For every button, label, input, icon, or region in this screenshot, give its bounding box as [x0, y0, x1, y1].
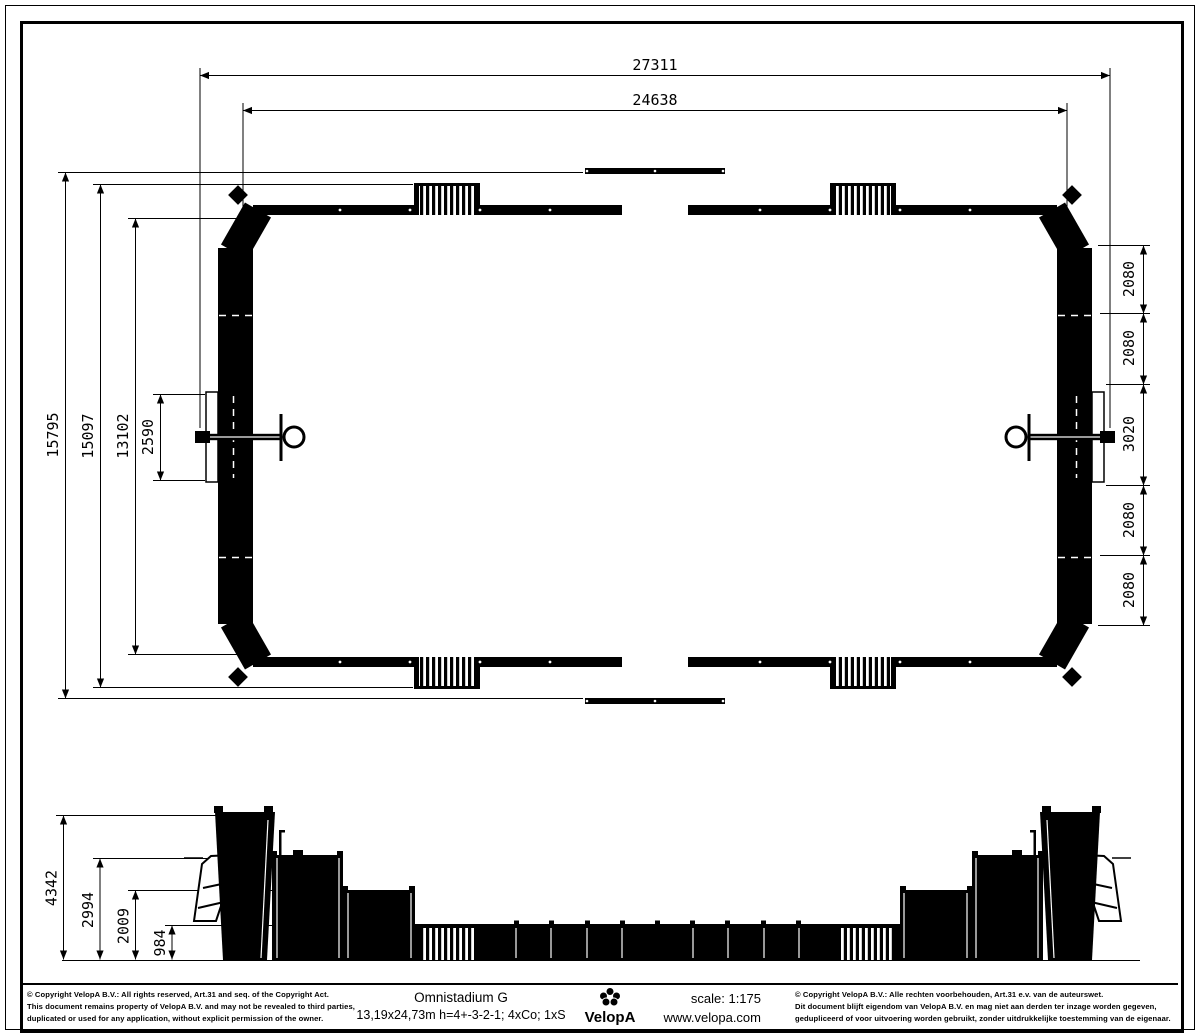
elevation-structure-half	[184, 806, 660, 960]
dim-frame-width: 24638	[632, 91, 677, 109]
copyright-right-line-2: Dit document blijft eigendom van VelopA …	[795, 1001, 1171, 1013]
plan-structure-quadrant	[218, 168, 725, 437]
plan-structure-top-right	[585, 168, 1092, 437]
product-spec: 13,19x24,73m h=4+-3-2-1; 4xCo; 1xS	[341, 1008, 581, 1022]
product-title: Omnistadium G	[341, 990, 581, 1005]
dim-height-total: 4342	[43, 870, 61, 906]
plan-view: 27311 24638 15795 15097 13102 2590 2080 …	[44, 56, 1150, 704]
copyright-left-line-2: This document remains property of VelopA…	[27, 1001, 355, 1013]
dim-height-2: 2994	[79, 892, 97, 928]
dim-height-3: 2009	[115, 908, 133, 944]
product-info: Omnistadium G 13,19x24,73m h=4+-3-2-1; 4…	[341, 990, 581, 1022]
copyright-left-line-3: duplicated or used for any application, …	[27, 1013, 355, 1025]
copyright-left: © Copyright VelopA B.V.: All rights rese…	[27, 989, 355, 1025]
elevation-view: 4342 2994 2009 984	[43, 806, 1141, 961]
copyright-left-line-1: © Copyright VelopA B.V.: All rights rese…	[27, 989, 355, 1001]
plan-structure-bottom-right	[585, 435, 1092, 704]
dim-side-panel-4: 2080	[1120, 502, 1138, 538]
velopa-flower-icon	[595, 987, 625, 1007]
scale-label: scale: 1:175	[643, 991, 761, 1006]
website-url: www.velopa.com	[643, 1010, 761, 1025]
dim-overall-depth: 15795	[44, 412, 62, 457]
copyright-right-line-3: gedupliceerd of voor uitvoering worden g…	[795, 1013, 1171, 1025]
title-block: © Copyright VelopA B.V.: All rights rese…	[23, 983, 1178, 1029]
velopa-logo: VelopA	[579, 987, 641, 1026]
dim-side-panel-3: 3020	[1120, 416, 1138, 452]
elevation-dimension-labels: 4342 2994 2009 984	[43, 870, 170, 957]
dim-goal-panel: 2590	[139, 419, 157, 455]
dim-side-panel-5: 2080	[1120, 572, 1138, 608]
dim-inner-depth: 13102	[114, 413, 132, 458]
copyright-right-line-1: © Copyright VelopA B.V.: Alle rechten vo…	[795, 989, 1171, 1001]
technical-drawing: 27311 24638 15795 15097 13102 2590 2080 …	[0, 0, 1200, 983]
plan-structure-bottom-left	[218, 435, 725, 704]
dim-height-fence: 984	[151, 929, 169, 956]
dim-side-panel-2: 2080	[1120, 330, 1138, 366]
velopa-logo-text: VelopA	[579, 1009, 641, 1026]
dim-stand-depth: 15097	[79, 413, 97, 458]
scale-info: scale: 1:175 www.velopa.com	[643, 991, 761, 1025]
dim-overall-width: 27311	[632, 56, 677, 74]
dim-side-panel-1: 2080	[1120, 261, 1138, 297]
copyright-right: © Copyright VelopA B.V.: Alle rechten vo…	[795, 989, 1171, 1025]
elevation-structure-right	[655, 806, 1131, 960]
plan-dimension-labels: 27311 24638 15795 15097 13102 2590 2080 …	[44, 56, 1138, 608]
